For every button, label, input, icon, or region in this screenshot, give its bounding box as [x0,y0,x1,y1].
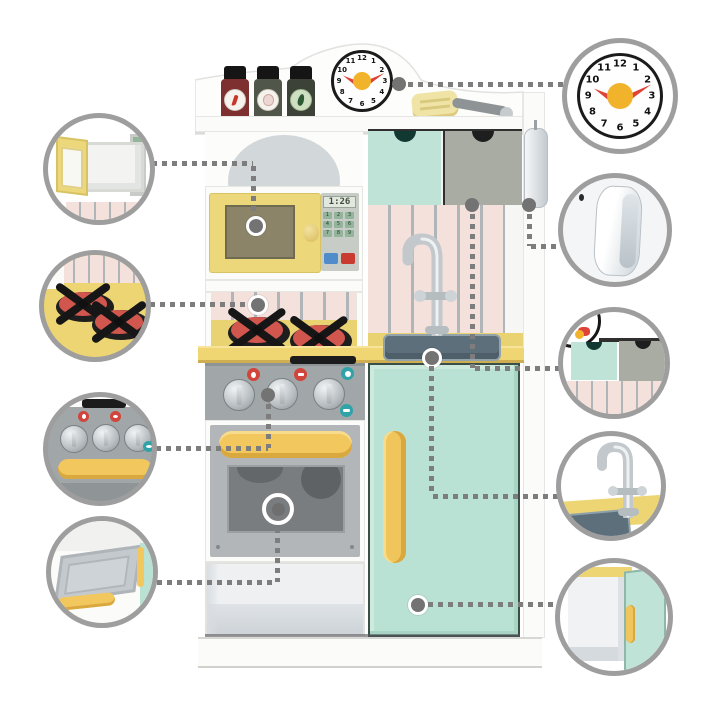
clock-numeral: 9 [585,91,592,102]
open-microwave-door [56,136,88,196]
faucet [398,230,458,336]
spice-jar-herb [287,66,315,121]
base-shadow [205,634,520,637]
upper-cabinet [205,132,363,186]
clock-numeral: 4 [644,106,651,117]
connector-dot [522,198,536,212]
clock-numeral: 1 [632,63,639,74]
callout-side-phone [558,173,672,287]
callout-oven-door-open [46,516,158,628]
connector-line [433,494,559,499]
clock-center [607,83,633,109]
steam-icon [341,367,354,380]
callout-teaching-clock: 121234567891011 [562,38,678,154]
clock-numeral: 2 [644,75,651,86]
keypad-button: 8 [334,230,343,237]
chili-label-icon [224,89,246,111]
drawer-row [368,129,522,205]
connector-dot [465,198,479,212]
keypad-button: 1 [323,212,332,219]
screw-icon [350,545,354,549]
keypad-button: 9 [345,230,354,237]
drawer-gray [445,131,522,205]
clock-numeral: 2 [379,66,384,74]
clock-numeral: 5 [632,118,639,129]
spice-jar-chili [221,66,249,121]
connector-line [531,244,561,249]
jar-cap [224,66,246,79]
phone-antenna-icon [534,120,537,130]
callout-clock: 121234567891011 [577,53,663,139]
clock-numeral: 12 [613,59,627,70]
callout-fridge-door-open [555,558,673,676]
fridge-handle [383,431,406,563]
callout-burner-right [90,307,148,337]
keypad-button: 5 [334,221,343,228]
screw-icon [579,194,584,201]
sink-basin [383,334,501,361]
clock-numeral: 6 [617,122,624,133]
callout-control-knobs [43,392,157,506]
connector-dot [261,388,275,402]
connector-dot [246,216,266,236]
connector-line [527,214,532,246]
clock-numeral: 9 [337,77,342,85]
clock-numeral: 7 [348,97,353,105]
oven-knob-1 [223,379,255,411]
grill-icon [294,368,307,381]
clock-numeral: 4 [379,88,384,96]
jar-cap [257,66,279,79]
callout-drawer-mint [571,342,619,380]
screw-icon [216,545,220,549]
stove-burner-left [226,314,288,346]
oven-control-panel [205,363,365,420]
clock-numeral: 8 [589,106,596,117]
base-plinth [198,637,542,668]
flame-icon [247,368,260,381]
mid-shelf [205,280,363,292]
connector-line [470,214,475,368]
connector-line [475,366,561,371]
herb-label-icon [290,89,312,111]
microwave-stop-button [341,253,355,264]
product-feature-image: 121234567891011 [0,0,720,720]
callout-microwave-door-open [43,113,155,225]
fridge-door [368,363,520,637]
callout-drawer-gray [619,341,667,381]
clock-numeral: 5 [371,97,376,105]
connector-dot [248,295,268,315]
oven-handle [219,431,352,458]
callout-stove-burners [39,250,151,362]
drawer-notch-icon [472,131,494,142]
callout-knob [60,425,88,453]
microwave-door-knob [303,224,319,242]
garlic-label-icon [257,89,279,111]
drawer-notch-icon [394,131,416,142]
connector-line [275,518,280,582]
callout-storage-drawers [558,307,670,419]
open-fridge-interior [568,577,626,661]
jar-cap [290,66,312,79]
callout-faucet [589,440,649,518]
connector-line [266,404,271,448]
connector-line [157,580,277,585]
connector-line [150,302,246,307]
open-microwave-interior [84,142,144,192]
clock-numeral: 3 [383,77,388,85]
callout-oven-handle [58,459,152,479]
microwave: 1:26 123456789 [205,186,363,280]
wall-phone [524,128,548,208]
clock-numeral: 7 [601,118,608,129]
oven-door [210,425,360,557]
clock-center [353,72,371,90]
keypad-button: 2 [334,212,343,219]
alcove-right-wall [356,292,363,348]
clock-numeral: 10 [585,75,599,86]
drawer-mint [368,131,443,205]
connector-dot [422,348,442,368]
flame-icon [78,411,89,422]
keypad-button: 3 [345,212,354,219]
open-shelf [205,562,365,636]
microwave-display: 1:26 [323,196,356,208]
connector-dot [392,77,406,91]
connector-line [408,82,563,87]
keypad-button: 4 [323,221,332,228]
water-icon [143,441,154,452]
water-icon [340,404,353,417]
microwave-keypad: 123456789 [323,212,357,237]
connector-line [152,161,253,166]
kitchen-clock: 121234567891011 [331,50,393,112]
connector-dot [408,595,428,615]
open-fridge-handle [626,605,635,643]
clock-numeral: 8 [340,88,345,96]
clock-numeral: 1 [371,57,376,65]
clock-numeral: 12 [357,54,367,62]
oven [205,420,365,562]
callout-knob [92,424,120,452]
connector-line [251,166,256,220]
connector-line [156,446,268,451]
oven-knob-3 [313,378,345,410]
keypad-button: 6 [345,221,354,228]
burner-edge-shadow [290,356,356,364]
microwave-panel: 1:26 123456789 [321,193,359,271]
callout-sink-faucet [556,431,666,541]
keypad-button: 7 [323,230,332,237]
clock-numeral: 3 [648,91,655,102]
grill-icon [110,411,121,422]
clock-numeral: 10 [337,66,347,74]
clock-numeral: 6 [360,100,365,108]
spice-jar-garlic [254,66,282,121]
clock-numeral: 11 [597,63,611,74]
connector-ring-dot [262,493,294,525]
microwave-door [209,193,321,273]
connector-line [428,602,558,607]
connector-line [429,366,434,496]
clock-numeral: 11 [346,57,356,65]
microwave-start-button [324,253,338,264]
